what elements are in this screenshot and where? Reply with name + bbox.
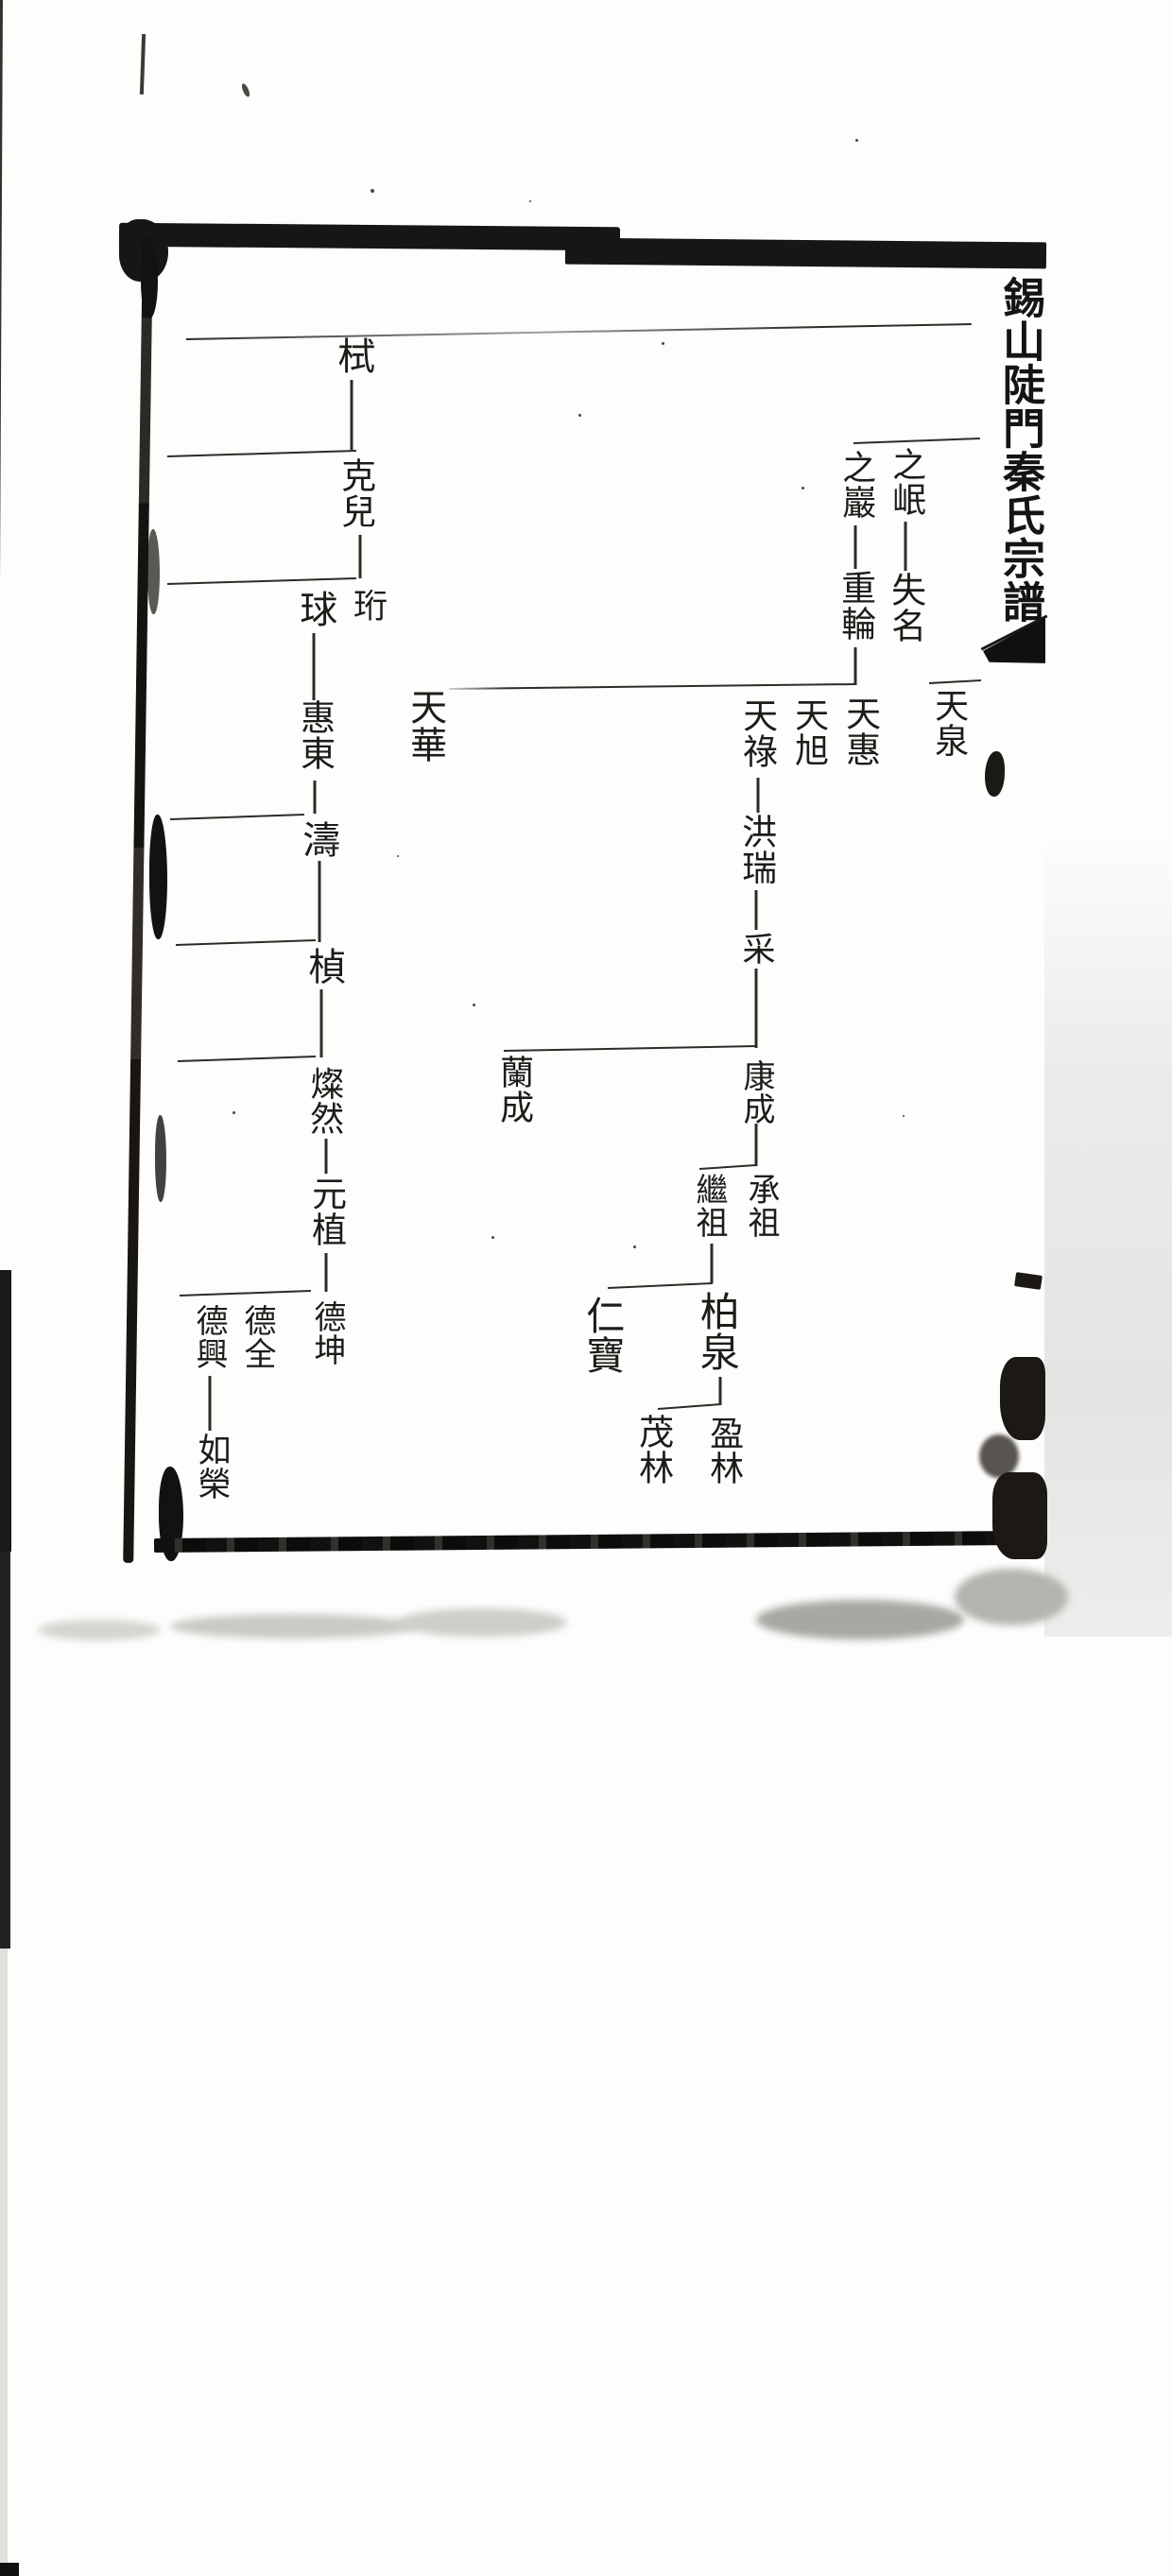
frame-border-left: [123, 238, 153, 1563]
descent-line: [313, 633, 316, 700]
descent-line: [320, 989, 323, 1057]
descent-line: [359, 535, 362, 578]
person-重輪: 重輪: [836, 570, 873, 642]
descent-line: [314, 781, 317, 814]
descent-line: [755, 969, 758, 1048]
generation-line: [186, 323, 972, 340]
person-仁寶: 仁寶: [580, 1296, 621, 1375]
person-元植: 元植: [307, 1176, 344, 1247]
generation-line: [170, 814, 304, 820]
person-采: 采: [737, 932, 772, 966]
scan-margin-shadow: [1044, 832, 1172, 1637]
person-濤: 濤: [298, 820, 337, 859]
ink-blotch: [149, 815, 167, 939]
person-天惠: 天惠: [841, 696, 878, 767]
scan-artifact: [955, 1569, 1068, 1625]
scan-speck: [240, 82, 251, 97]
frame-border-top: [119, 223, 620, 251]
frame-border-bottom: [154, 1531, 1046, 1553]
person-德坤: 德坤: [310, 1300, 344, 1366]
ink-smudge: [992, 1472, 1047, 1559]
scan-artifact: [170, 1614, 416, 1639]
generation-line: [504, 1045, 756, 1052]
person-德興: 德興: [192, 1304, 226, 1370]
scan-speck: [233, 1111, 235, 1114]
person-楨: 楨: [303, 947, 343, 986]
person-承祖: 承祖: [744, 1173, 778, 1239]
person-康成: 康成: [739, 1059, 773, 1125]
descent-line: [351, 380, 353, 450]
scan-speck: [529, 200, 531, 202]
person-球: 球: [295, 590, 335, 628]
ink-blob: [985, 751, 1005, 797]
scan-speck: [371, 189, 374, 193]
page-fold-edge: [0, 1552, 10, 1949]
person-天旭: 天旭: [790, 697, 826, 767]
fold-edge-tick: [0, 2563, 19, 2576]
descent-line: [209, 1376, 212, 1431]
page-fold-edge-faint: [0, 1949, 8, 2563]
page-fold-edge: [0, 1270, 11, 1552]
person-珩: 珩: [349, 588, 385, 623]
chart-inner-right-rule: [0, 0, 3, 1270]
descent-line: [325, 1139, 328, 1174]
scanned-page: 錫山陡門秦氏宗譜 栻克兒珩球惠東濤楨燦然元植德坤德全德興如榮之岷失名之巖重輪天惠…: [0, 0, 1172, 1656]
book-title: 錫山陡門秦氏宗譜: [994, 276, 1042, 624]
ink-smudge: [1000, 1357, 1045, 1440]
generation-line: [167, 450, 356, 457]
descent-line: [711, 1244, 714, 1283]
scan-speck: [855, 139, 858, 142]
generation-line: [853, 438, 980, 444]
scan-speck: [633, 1245, 636, 1248]
frame-border-top-right: [565, 238, 1046, 269]
descent-line: [755, 1124, 758, 1166]
person-天祿: 天祿: [738, 697, 775, 769]
person-克兒: 克兒: [336, 457, 373, 529]
ink-smudge: [1014, 1272, 1043, 1290]
person-如榮: 如榮: [193, 1433, 228, 1501]
person-惠東: 惠東: [296, 699, 333, 771]
descent-line: [905, 522, 907, 571]
person-德全: 德全: [240, 1304, 274, 1370]
person-失名: 失名: [887, 572, 923, 644]
generation-line: [180, 1290, 311, 1297]
generation-line: [699, 1164, 756, 1170]
scan-artifact: [38, 1620, 161, 1640]
descent-line: [325, 1253, 328, 1292]
descent-line: [319, 861, 321, 942]
descent-line: [719, 1377, 722, 1405]
ink-blotch: [155, 1115, 166, 1202]
person-柏泉: 柏泉: [696, 1291, 738, 1372]
generation-line: [449, 683, 856, 690]
generation-line: [658, 1403, 721, 1410]
scan-artifact: [756, 1600, 964, 1640]
person-蘭成: 蘭成: [495, 1055, 531, 1125]
scan-speck: [473, 1004, 475, 1006]
generation-line: [178, 1056, 316, 1062]
person-天華: 天華: [405, 688, 444, 764]
person-天泉: 天泉: [930, 688, 966, 758]
person-洪瑞: 洪瑞: [737, 814, 774, 885]
person-繼祖: 繼祖: [692, 1173, 726, 1239]
descent-line: [755, 890, 758, 930]
scan-speck: [140, 34, 146, 94]
scan-speck: [578, 414, 581, 417]
descent-line: [854, 525, 857, 569]
ink-blotch: [147, 529, 160, 614]
person-栻: 栻: [333, 336, 372, 375]
descent-line: [757, 778, 760, 813]
ink-blotch: [141, 241, 158, 318]
scan-speck: [491, 1236, 494, 1239]
generation-line: [608, 1282, 713, 1289]
person-之岷: 之岷: [888, 447, 923, 517]
generation-line: [167, 577, 356, 585]
scan-speck: [903, 1115, 905, 1117]
scan-speck: [397, 855, 399, 857]
person-盈林: 盈林: [705, 1416, 741, 1485]
scan-speck: [662, 342, 664, 345]
person-之巖: 之巖: [837, 450, 873, 520]
scan-artifact: [397, 1608, 567, 1637]
generation-line: [929, 679, 981, 684]
person-茂林: 茂林: [634, 1414, 671, 1485]
scan-speck: [801, 487, 804, 489]
generation-line: [176, 939, 316, 946]
person-燦然: 燦然: [305, 1066, 341, 1136]
descent-line: [854, 647, 857, 685]
